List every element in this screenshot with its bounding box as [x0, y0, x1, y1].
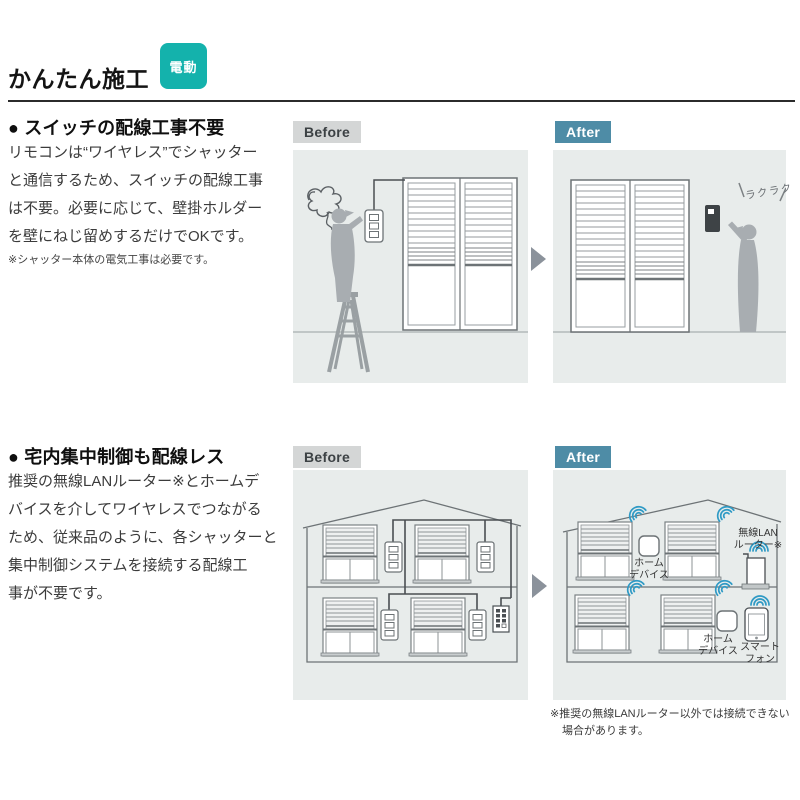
shutter-window [663, 522, 721, 580]
section2-before-badge: Before [293, 446, 361, 468]
wired-house-illustration [293, 470, 528, 700]
wall-holder-remote [705, 205, 720, 232]
section1-after-panel: ラクラク [553, 150, 786, 383]
shutter-window [409, 598, 467, 656]
smartphone [745, 608, 768, 641]
shutter-window [576, 522, 634, 580]
section2-before-panel [293, 470, 528, 700]
wireless-holder-installation-illustration [553, 150, 786, 383]
wall-switch [365, 210, 383, 242]
home-device-label-1f: ホーム デバイス [696, 634, 740, 658]
central-control-panel [493, 606, 509, 632]
shutter-doors [571, 180, 689, 332]
switch-wire [374, 180, 405, 211]
wired-switch-installation-illustration [293, 150, 528, 383]
section1-heading: ● スイッチの配線工事不要 [8, 114, 224, 140]
shutter-window [321, 598, 379, 656]
home-device [639, 536, 659, 556]
wall-switch [477, 542, 494, 572]
before-after-arrow-icon [531, 247, 546, 271]
wireless-lan-router [742, 554, 769, 589]
worker-silhouette [331, 209, 363, 303]
wifi-icon [751, 596, 769, 605]
before-after-arrow-icon [532, 574, 547, 598]
wall-switch [469, 610, 486, 640]
section2-heading: ● 宅内集中制御も配線レス [8, 443, 224, 469]
wall-switch [381, 610, 398, 640]
wall-switch [385, 542, 402, 572]
section1-before-badge: Before [293, 121, 361, 143]
router-label: 無線LAN ルーター※ [730, 528, 786, 552]
home-device [717, 611, 737, 631]
home-device-label-2f: ホーム デバイス [627, 558, 671, 582]
shutter-doors [403, 178, 517, 330]
section2-after-badge: After [555, 446, 611, 468]
tangled-wire-scribble [308, 187, 341, 230]
section1-after-badge: After [555, 121, 611, 143]
wifi-icon [714, 503, 734, 521]
title-underline [8, 100, 795, 102]
section2-footnote: ※推奨の無線LANルーター以外では接続できない 場合があります。 [550, 706, 800, 740]
section1-body: リモコンは“ワイヤレス”でシャッター と通信するため、スイッチの配線工事 は不要… [8, 139, 263, 251]
section1-before-panel [293, 150, 528, 383]
shutter-window [413, 525, 471, 583]
section2-after-panel: ホーム デバイス 無線LAN ルーター※ ホーム デバイス スマート フォン [553, 470, 786, 700]
section1-note: ※シャッター本体の電気工事は必要です。 [8, 251, 214, 267]
electric-badge: 電動 [160, 43, 207, 89]
page-title: かんたん施工 [8, 60, 149, 94]
smartphone-label: スマート フォン [738, 642, 782, 666]
section2-body: 推奨の無線LANルーター※とホームデ バイスを介してワイヤレスでつながる ため、… [8, 468, 278, 608]
shutter-window [321, 525, 379, 583]
wifi-icon [626, 503, 646, 521]
worker-silhouette [728, 222, 758, 333]
shutter-window [573, 595, 631, 653]
